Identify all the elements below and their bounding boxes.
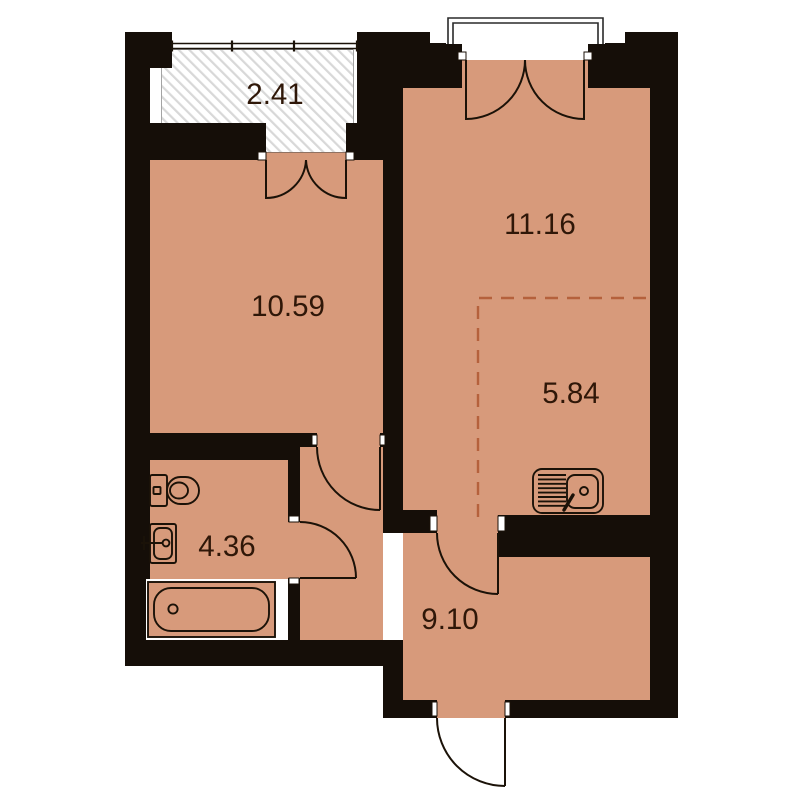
living-room-floor (403, 60, 650, 517)
area-label-bedroom: 10.59 (251, 290, 325, 323)
wall-bathroom-right-lower (288, 578, 300, 640)
wall-top-center (357, 32, 430, 88)
area-label-living-room: 11.16 (504, 208, 576, 241)
balcony-railing (446, 16, 605, 44)
wall-top-living-left (430, 43, 462, 88)
wall-hallway-corner (383, 510, 437, 533)
kitchen-door-threshold (437, 513, 498, 535)
area-label-kitchen-niche: 5.84 (542, 377, 599, 410)
wall-bathroom-top (125, 433, 290, 460)
area-label-bathroom: 4.36 (198, 530, 255, 563)
area-label-balcony: 2.41 (246, 78, 303, 111)
bedroom-door-threshold (317, 433, 380, 463)
wall-bottom-right (505, 700, 678, 718)
wall-bathroom-right-upper (288, 447, 300, 522)
wall-outer-right (650, 32, 678, 718)
area-label-hallway: 9.10 (421, 603, 478, 636)
entrance-threshold (437, 700, 505, 718)
wall-kitchen-bottom (498, 515, 650, 557)
floor-plan-svg: 2.41 11.16 10.59 5.84 4.36 9.10 (0, 0, 800, 800)
bathtub-symbol (146, 579, 288, 640)
wall-hallway-step (383, 640, 403, 718)
wall-balcony-bedroom-left (125, 123, 266, 160)
entrance-door-swing (437, 718, 505, 786)
balcony-door-threshold-bedroom (266, 152, 346, 160)
hallway-floor-left (300, 433, 383, 640)
wall-bottom-left (125, 640, 383, 666)
wall-corner-top-left (125, 32, 172, 68)
bathroom-door-threshold (288, 522, 300, 578)
floor-plan-page: 2.41 11.16 10.59 5.84 4.36 9.10 (0, 0, 800, 800)
toilet-symbol (150, 475, 199, 506)
